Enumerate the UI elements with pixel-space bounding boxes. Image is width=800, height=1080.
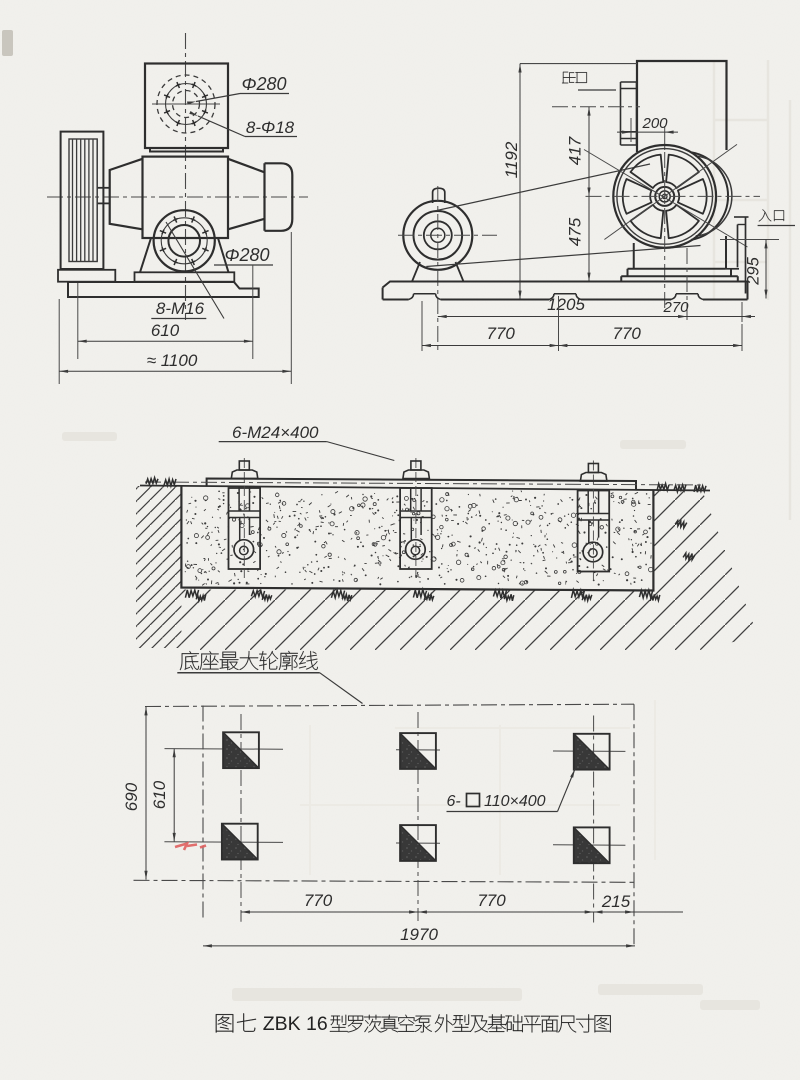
svg-text:ZBK 16: ZBK 16	[263, 1013, 328, 1035]
svg-text:Φ280: Φ280	[241, 74, 286, 94]
svg-text:Φ280: Φ280	[224, 245, 269, 265]
svg-text:1970: 1970	[400, 925, 438, 944]
svg-text:1205: 1205	[547, 295, 585, 314]
svg-text:770: 770	[304, 891, 333, 910]
svg-text:770: 770	[477, 891, 506, 910]
svg-text:6-: 6-	[447, 793, 461, 810]
svg-text:475: 475	[566, 217, 585, 246]
svg-text:770: 770	[487, 324, 516, 343]
svg-text:8-M16: 8-M16	[156, 299, 205, 318]
svg-text:200: 200	[641, 115, 668, 132]
svg-text:1192: 1192	[502, 141, 521, 178]
svg-text:215: 215	[601, 892, 631, 911]
svg-text:110×400: 110×400	[484, 793, 546, 810]
svg-text:≈ 1100: ≈ 1100	[147, 351, 198, 370]
svg-text:417: 417	[566, 136, 585, 165]
svg-text:270: 270	[662, 299, 689, 316]
svg-text:610: 610	[150, 780, 169, 809]
svg-text:8-Φ18: 8-Φ18	[246, 118, 295, 137]
svg-text:610: 610	[151, 321, 180, 340]
svg-text:770: 770	[613, 324, 642, 343]
svg-text:6-M24×400: 6-M24×400	[232, 423, 319, 442]
svg-text:690: 690	[122, 782, 141, 811]
